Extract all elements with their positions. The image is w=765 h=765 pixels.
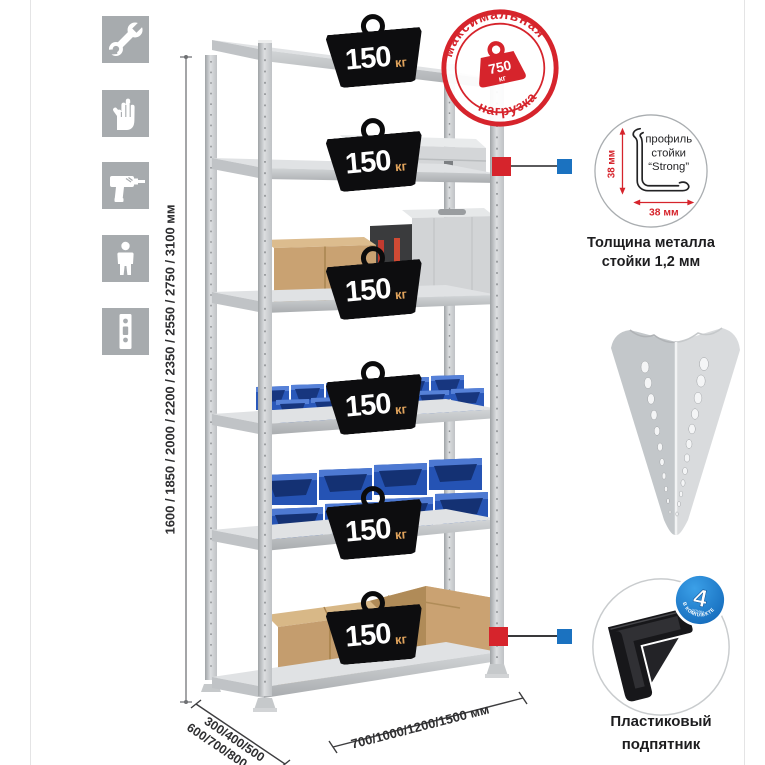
weight-value: 150 xyxy=(344,512,392,549)
drill-icon xyxy=(102,162,149,209)
weight-badge-shelf-1: 150 кг xyxy=(317,9,433,89)
metal-thickness-line1: Толщина металла xyxy=(587,235,715,251)
profile-label-line1: профиль xyxy=(645,133,692,145)
perforated-profile-icon-art xyxy=(102,308,149,355)
metal-thickness-line2: стойки 1,2 мм xyxy=(602,254,701,270)
weight-unit: кг xyxy=(394,401,407,417)
height-dimension-label: 1600 / 1850 / 2000 / 2200 / 2350 / 2550 … xyxy=(163,170,178,570)
height-dimension-line xyxy=(176,50,200,710)
foot-callout-marker-red xyxy=(489,627,508,646)
quantity-badge: 4 штуки в комплекте xyxy=(667,567,733,633)
plastic-foot-line2: подпятник xyxy=(622,736,701,753)
profile-callout-marker-red xyxy=(492,157,511,176)
wrench-icon xyxy=(102,16,149,63)
profile-label-line2: стойки xyxy=(651,147,686,159)
profile-callout-line xyxy=(511,165,557,167)
shelving-infographic: 1600 / 1850 / 2000 / 2200 / 2350 / 2550 … xyxy=(0,0,765,765)
profile-label-line3: “Strong” xyxy=(648,161,689,173)
weight-badge-shelf-3: 150 кг xyxy=(317,241,433,321)
weight-badge-shelf-5: 150 кг xyxy=(317,481,433,561)
weight-value: 150 xyxy=(344,144,392,181)
angle-post-illustration xyxy=(598,322,748,550)
weight-badge-shelf-2: 150 кг xyxy=(317,113,433,193)
weight-body: 150 кг xyxy=(326,374,426,436)
weight-body: 150 кг xyxy=(326,131,426,193)
perforated-profile-icon xyxy=(102,308,149,355)
weight-unit: кг xyxy=(394,526,407,542)
drill-icon-art xyxy=(102,162,149,209)
weight-unit: кг xyxy=(394,54,407,70)
weight-value: 150 xyxy=(344,272,392,309)
foot-callout-line xyxy=(508,635,557,637)
weight-body: 150 кг xyxy=(326,259,426,321)
metal-thickness-caption: Толщина металла стойки 1,2 мм xyxy=(556,234,746,272)
wrench-icon-art xyxy=(102,16,149,63)
weight-value: 150 xyxy=(344,40,392,77)
max-load-stamp: максимальная нагрузка 750 кг xyxy=(424,0,576,144)
weight-value: 150 xyxy=(344,387,392,424)
person-icon-art xyxy=(102,235,149,282)
page-edge-left xyxy=(30,0,31,765)
rack-rear-left-post xyxy=(201,55,221,692)
weight-unit: кг xyxy=(394,158,407,174)
profile-vertical-dim-label: 38 мм xyxy=(607,150,618,178)
gloves-icon-art xyxy=(102,90,149,137)
plastic-foot-caption: Пластиковый подпятник xyxy=(566,710,756,756)
weight-unit: кг xyxy=(394,286,407,302)
weight-badge-shelf-6: 150 кг xyxy=(317,586,433,666)
weight-body: 150 кг xyxy=(326,499,426,561)
rack-front-left-post xyxy=(253,40,277,712)
foot-callout-marker-blue xyxy=(557,629,572,644)
profile-detail-circle: 38 мм 38 мм профиль стойки “Strong” xyxy=(592,112,710,230)
weight-body: 150 кг xyxy=(326,27,426,89)
weight-body: 150 кг xyxy=(326,604,426,666)
person-icon xyxy=(102,235,149,282)
plastic-foot-line1: Пластиковый xyxy=(610,713,711,730)
profile-callout-marker-blue xyxy=(557,159,572,174)
weight-value: 150 xyxy=(344,617,392,654)
profile-horizontal-dim-label: 38 мм xyxy=(649,207,679,218)
weight-unit: кг xyxy=(394,631,407,647)
gloves-icon xyxy=(102,90,149,137)
weight-badge-shelf-4: 150 кг xyxy=(317,356,433,436)
